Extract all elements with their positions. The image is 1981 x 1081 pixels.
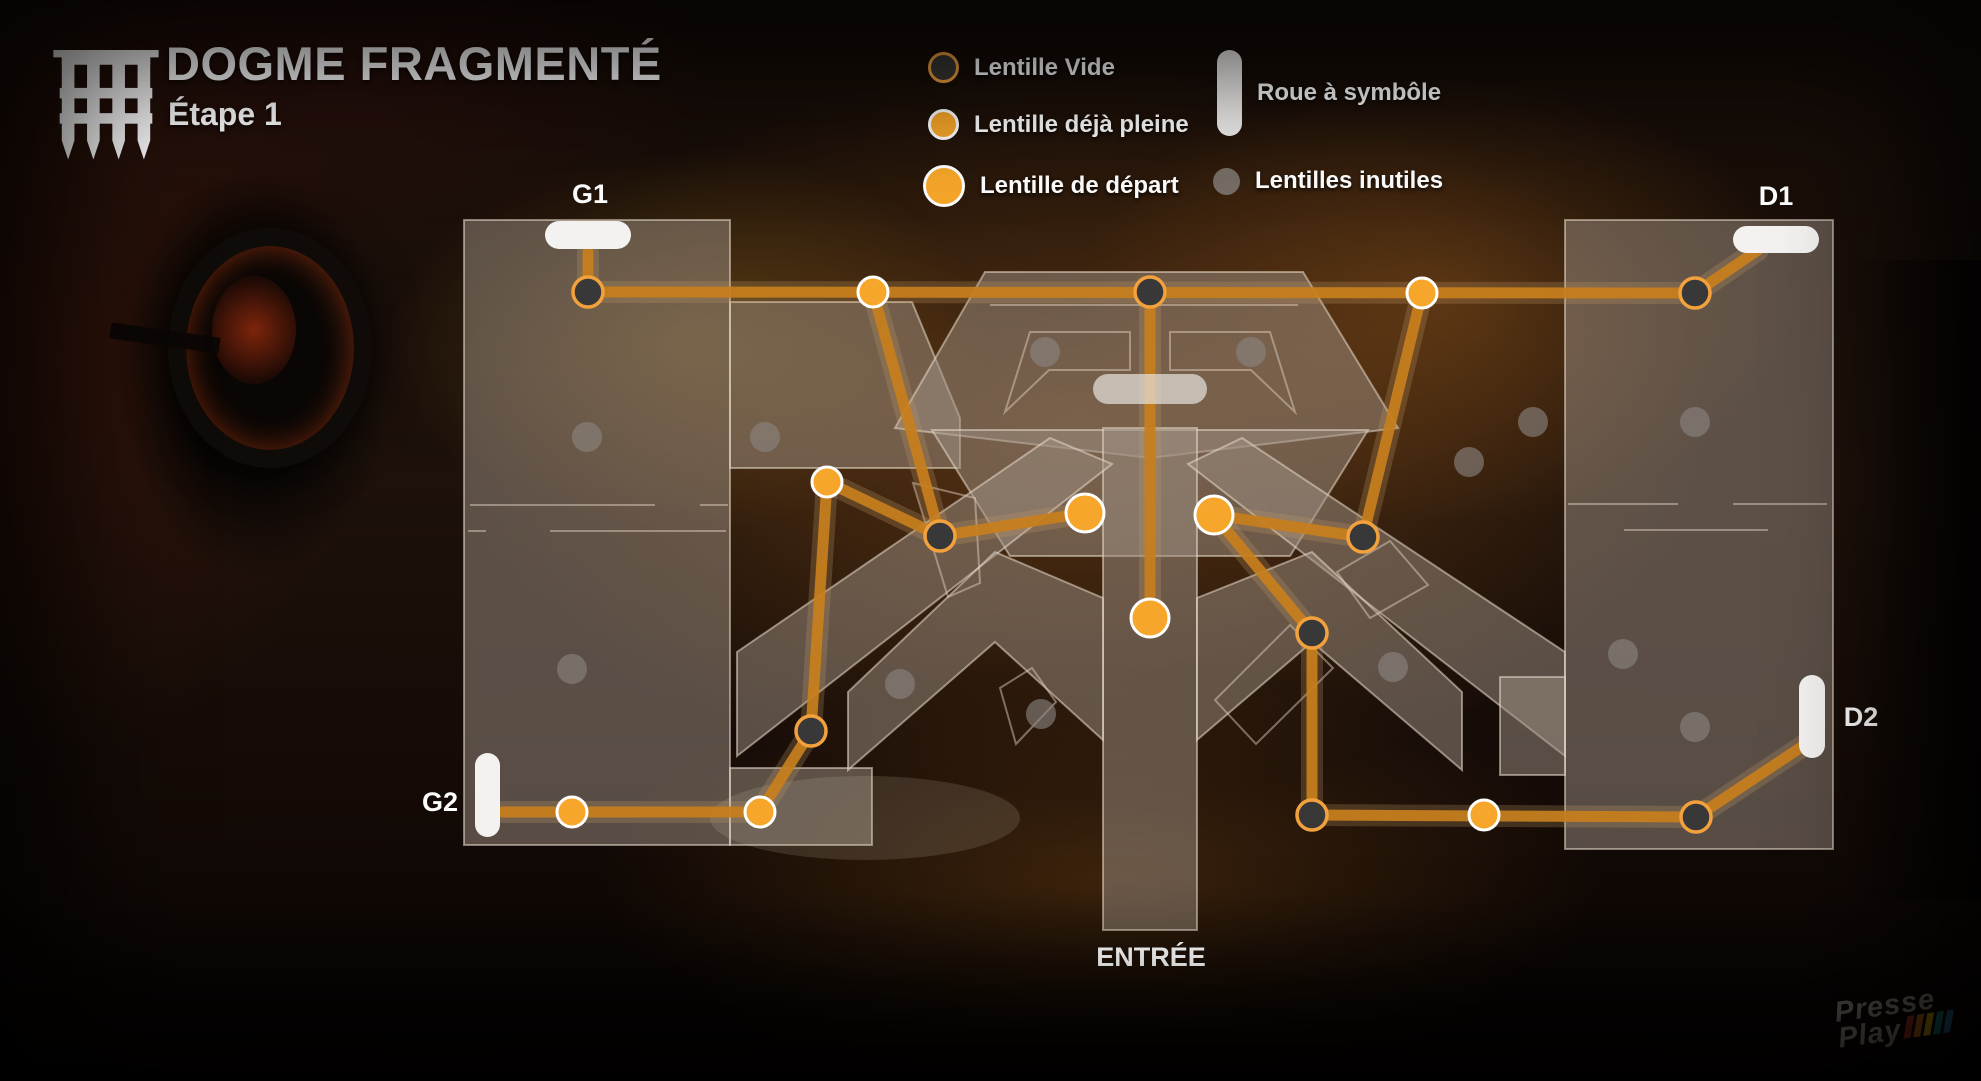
map-pill-roue-d1 [1733, 226, 1819, 253]
map-node-inutile [1378, 652, 1408, 682]
legend-item-lentille-vide: Lentille Vide [928, 52, 1115, 83]
legend-swatch-inutile-icon [1213, 168, 1240, 195]
map-node-vide [1297, 800, 1327, 830]
map-node-depart [1195, 496, 1233, 534]
map-node-vide [1297, 618, 1327, 648]
map-node-inutile [1026, 699, 1056, 729]
map-node-vide [1681, 802, 1711, 832]
map-pill-roue-g1 [545, 221, 631, 249]
map-node-inutile [557, 654, 587, 684]
map-node-pleine [812, 467, 842, 497]
map-node-inutile [1454, 447, 1484, 477]
watermark-bar [1903, 1015, 1914, 1039]
map-label-entree: ENTRÉE [1096, 941, 1206, 972]
map-node-vide [1348, 522, 1378, 552]
map-node-vide [925, 521, 955, 551]
legend-swatch-roue-icon [1217, 50, 1242, 136]
map-zone-left-slab [464, 220, 730, 845]
map-node-pleine [557, 797, 587, 827]
watermark-bar [1933, 1011, 1944, 1035]
map-node-inutile [1608, 639, 1638, 669]
legend-label-vide: Lentille Vide [974, 54, 1115, 82]
map-node-inutile [1680, 407, 1710, 437]
legend-label-pleine: Lentille déjà pleine [974, 111, 1189, 139]
map-node-vide [1680, 278, 1710, 308]
portcullis-icon [52, 50, 160, 170]
map-pill-roue-g2 [475, 753, 500, 837]
legend-item-lentilles-inutiles: Lentilles inutiles [1213, 167, 1443, 195]
legend-label-depart: Lentille de départ [980, 172, 1179, 200]
map-node-pleine [745, 797, 775, 827]
legend-label-roue: Roue à symbôle [1257, 79, 1441, 107]
map-zone-right-notch [1500, 677, 1565, 775]
legend-label-inutiles: Lentilles inutiles [1255, 167, 1443, 195]
map-node-pleine [858, 277, 888, 307]
map-node-inutile [885, 669, 915, 699]
watermark-bar [1913, 1014, 1924, 1038]
legend-swatch-vide-icon [928, 52, 959, 83]
watermark-bar [1923, 1012, 1934, 1036]
map-svg: G1D1G2D2ENTRÉE [0, 0, 1981, 1081]
map-path-v8-to-v9 [1312, 815, 1696, 817]
page-subtitle: Étape 1 [168, 96, 282, 133]
map-node-vide [1135, 277, 1165, 307]
map-node-pleine [1407, 278, 1437, 308]
map-node-depart [1131, 599, 1169, 637]
legend-item-lentille-pleine: Lentille déjà pleine [928, 109, 1189, 140]
map-node-inutile [1236, 337, 1266, 367]
page-title: DOGME FRAGMENTÉ [166, 36, 662, 91]
map-label-d1: D1 [1759, 181, 1794, 211]
map-node-inutile [1518, 407, 1548, 437]
legend-item-roue-symbole: Roue à symbôle [1217, 50, 1441, 136]
map-pill-roue-d2 [1799, 675, 1825, 758]
map-label-g2: G2 [422, 787, 458, 817]
legend-swatch-pleine-icon [928, 109, 959, 140]
legend-item-lentille-depart: Lentille de départ [923, 165, 1179, 207]
map-node-inutile [750, 422, 780, 452]
map-node-vide [573, 277, 603, 307]
map-label-g1: G1 [572, 179, 608, 209]
map-node-depart [1066, 494, 1104, 532]
map-node-pleine [1469, 800, 1499, 830]
map-node-inutile [1680, 712, 1710, 742]
map-node-inutile [572, 422, 602, 452]
legend-swatch-depart-icon [923, 165, 965, 207]
map-pill-roue-center [1093, 374, 1207, 404]
map-label-d2: D2 [1844, 702, 1879, 732]
map-node-vide [796, 716, 826, 746]
map-node-inutile [1030, 337, 1060, 367]
